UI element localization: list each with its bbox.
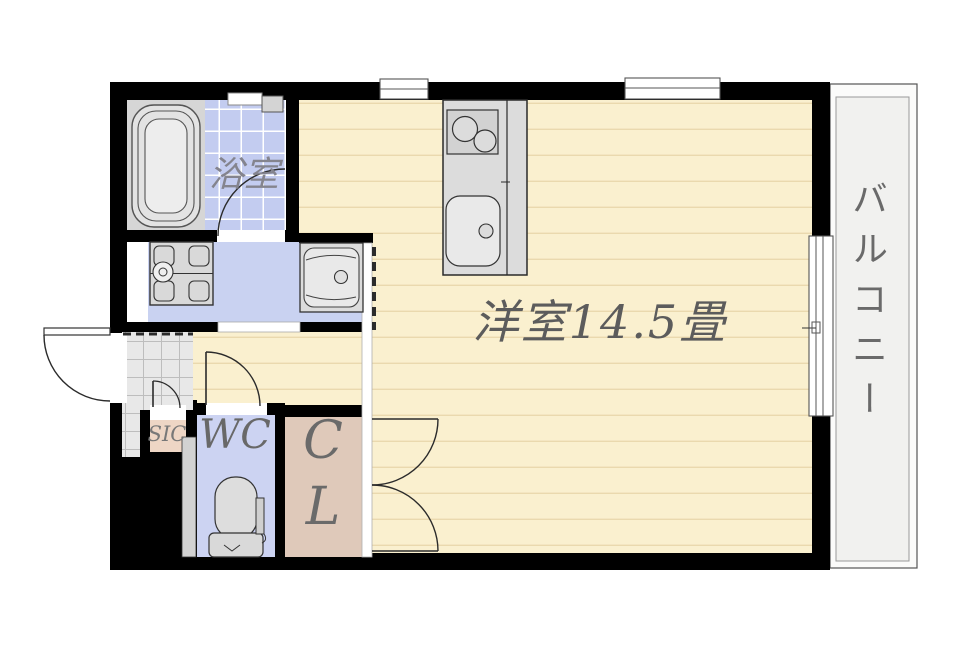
wc-opening — [206, 403, 267, 415]
kitchen-sink — [446, 196, 500, 266]
window-top-left — [380, 79, 428, 99]
balcony — [830, 84, 917, 568]
stove — [447, 110, 498, 154]
washer-pan — [150, 242, 213, 305]
hallway-floor — [193, 332, 362, 410]
bathroom-floor — [205, 100, 285, 230]
entrance-opening — [110, 333, 127, 403]
window-top-right — [625, 78, 720, 99]
floorplan-canvas — [0, 0, 960, 649]
kitchen-counter — [443, 100, 527, 275]
shoe-closet-floor — [150, 420, 186, 452]
entrance-door — [44, 328, 110, 401]
vanity-sink — [300, 243, 363, 312]
water-heater-box — [262, 96, 283, 112]
bathtub — [132, 105, 200, 227]
floorplan-page: 洋室14.5畳 浴室 WC C L SIC バルコニー — [0, 0, 960, 649]
washroom-opening — [218, 322, 300, 332]
closet-floor — [285, 417, 362, 557]
pipe-space — [182, 437, 196, 557]
bath-shelf — [228, 93, 262, 105]
bathroom-opening — [217, 230, 285, 242]
